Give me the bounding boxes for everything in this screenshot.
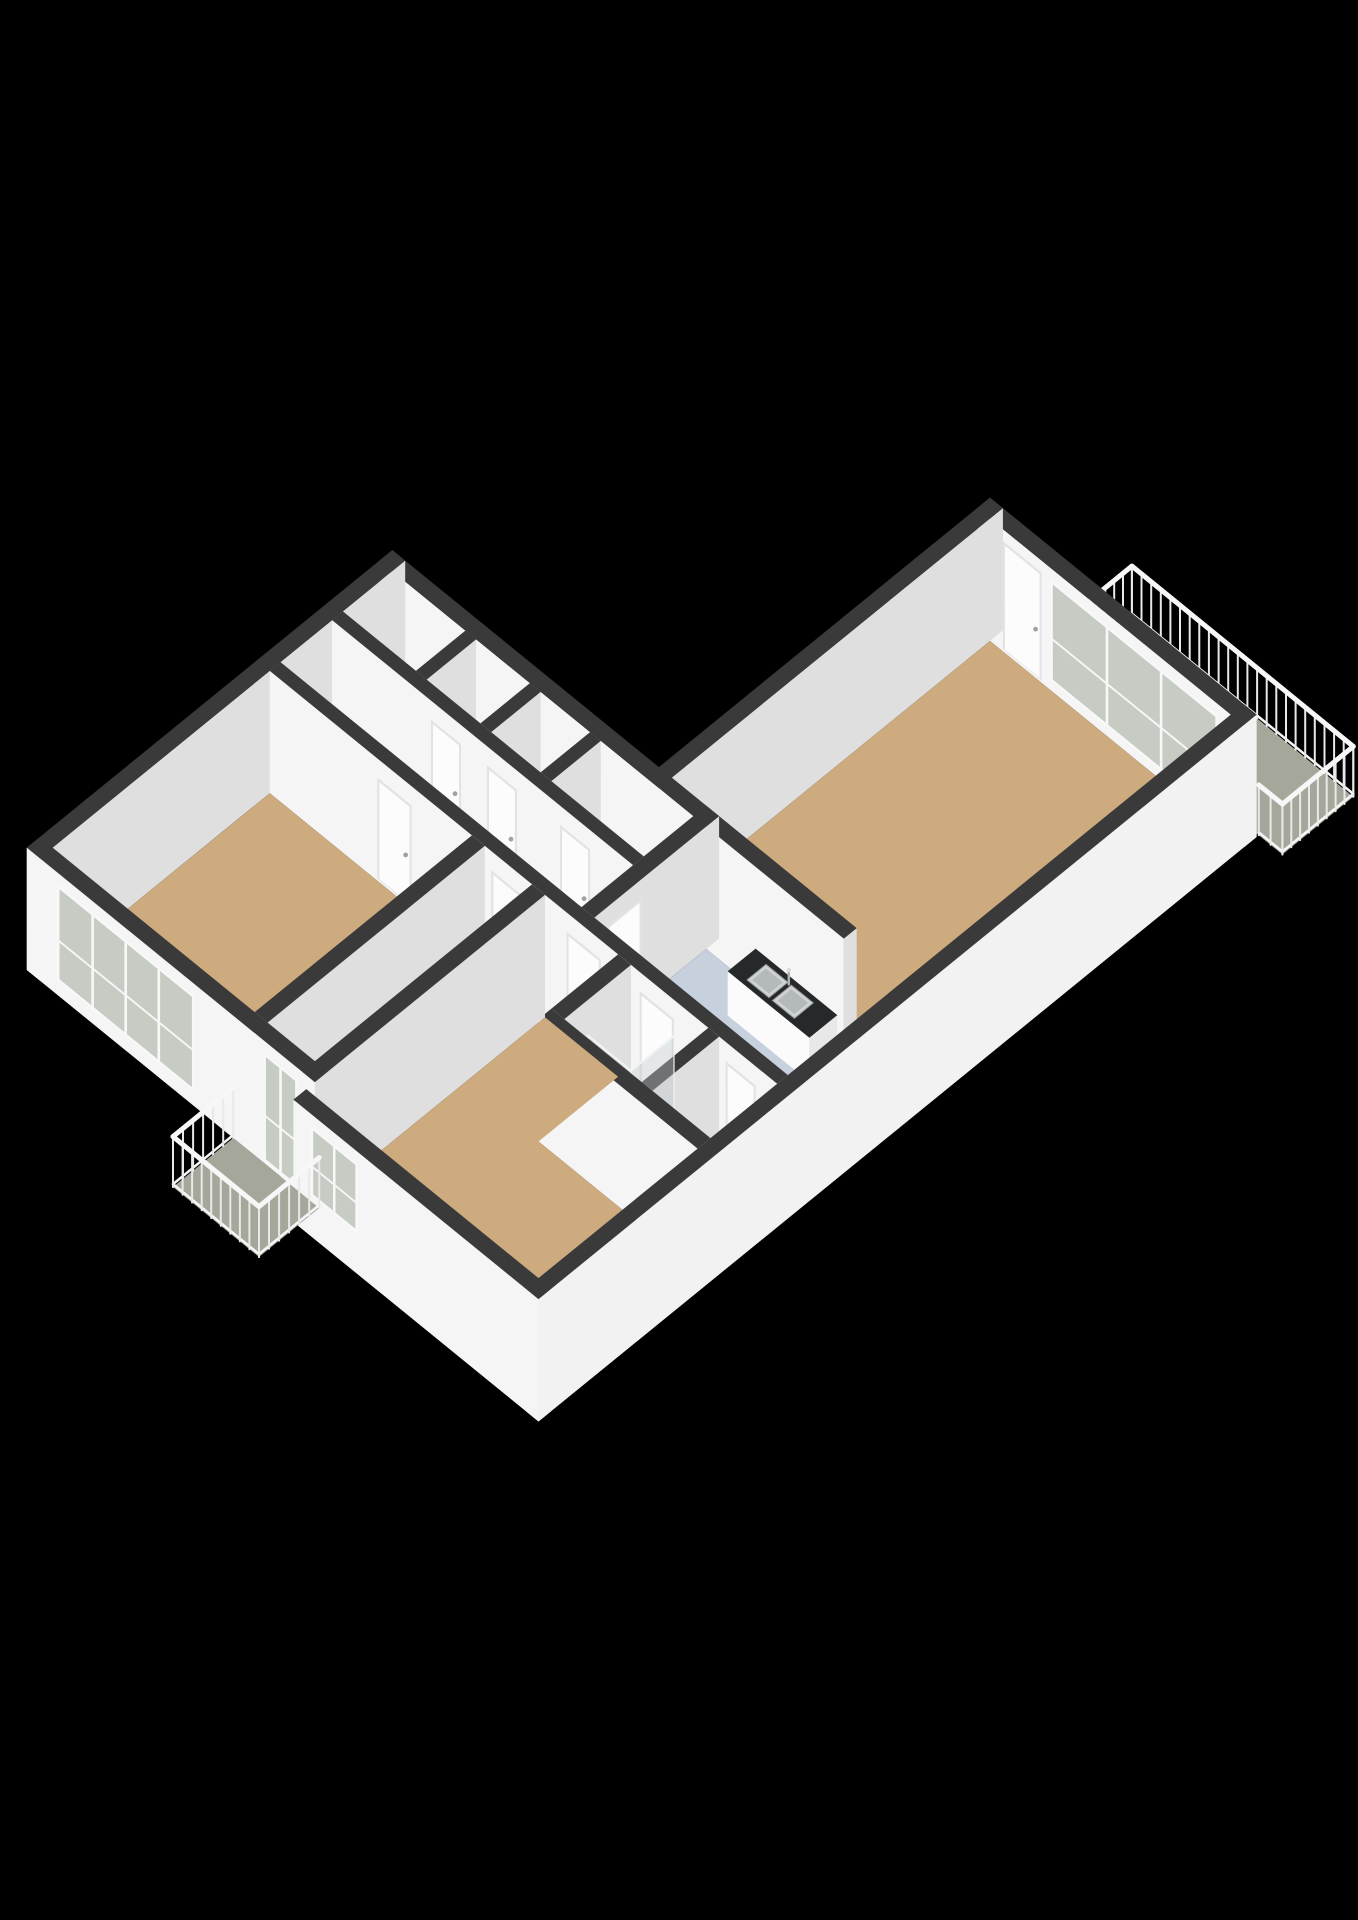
floorplan-3d-view	[0, 0, 1358, 1920]
floorplan-svg	[0, 0, 1358, 1920]
